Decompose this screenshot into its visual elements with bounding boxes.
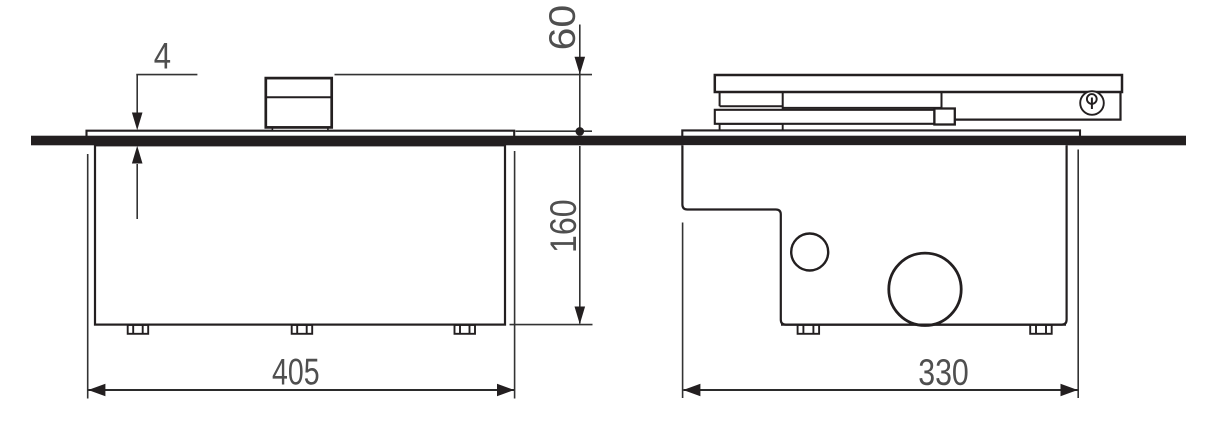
svg-text:160: 160	[544, 199, 585, 253]
svg-text:330: 330	[918, 352, 969, 394]
svg-text:60: 60	[543, 5, 584, 51]
svg-text:4: 4	[154, 36, 171, 77]
svg-text:405: 405	[272, 351, 320, 392]
